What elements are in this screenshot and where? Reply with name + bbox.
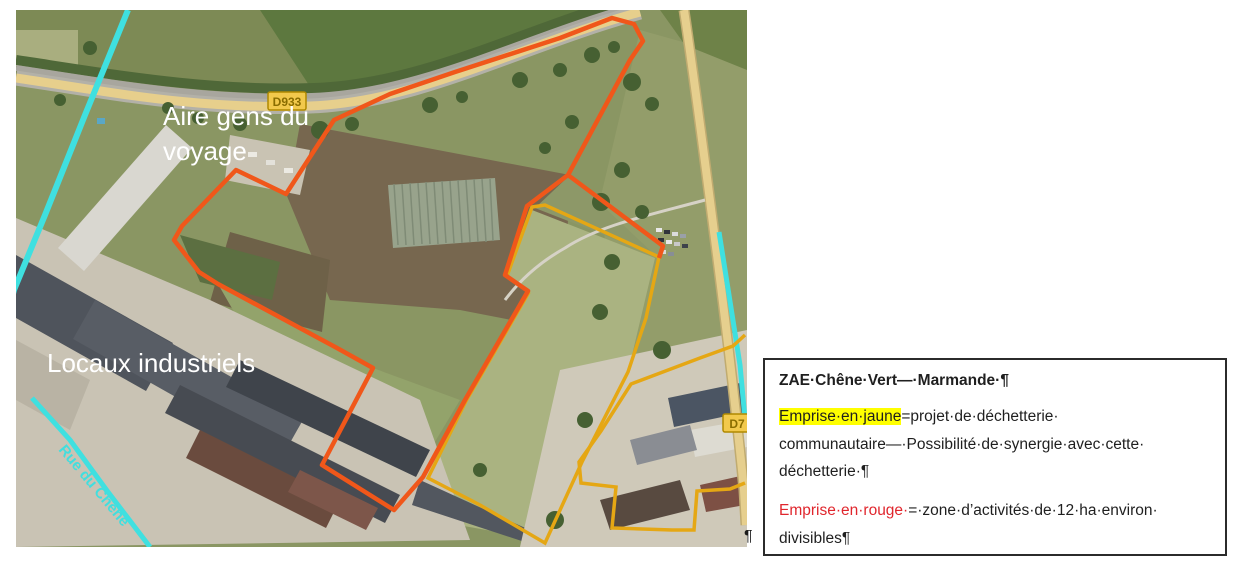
caravan [248, 152, 257, 157]
label-aire-gens-du-voyage-line1: Aire gens du [163, 101, 309, 131]
d7-label: D7 [729, 417, 745, 431]
red-text-emprise-rouge: Emprise·en·rouge· [779, 502, 908, 519]
satellite-map-image[interactable]: D933 D7 Aire gens du voyage Locaux indus… [16, 10, 747, 547]
label-aire-gens-du-voyage-line2: voyage [163, 136, 247, 166]
pool [97, 118, 105, 124]
paragraph-mark: ¶ [744, 528, 753, 546]
annotation-textbox[interactable]: ZAE·Chêne·Vert—·Marmande·¶ Emprise·en·ja… [763, 358, 1227, 556]
highlighted-text-emprise-jaune: Emprise·en·jaune [779, 408, 901, 425]
label-locaux-industriels: Locaux industriels [47, 348, 255, 378]
textbox-paragraph-red: Emprise·en·rouge·=·zone·d’activités·de·1… [779, 497, 1211, 552]
textbox-paragraph-yellow: Emprise·en·jaune=projet·de·déchetterie· … [779, 403, 1211, 486]
caravan [284, 168, 293, 173]
word-document-page: D933 D7 Aire gens du voyage Locaux indus… [0, 0, 1247, 572]
road-shield-d7: D7 [723, 414, 747, 432]
caravan [266, 160, 275, 165]
map-canvas: D933 D7 Aire gens du voyage Locaux indus… [16, 10, 747, 547]
textbox-title: ZAE·Chêne·Vert—·Marmande·¶ [779, 369, 1211, 392]
